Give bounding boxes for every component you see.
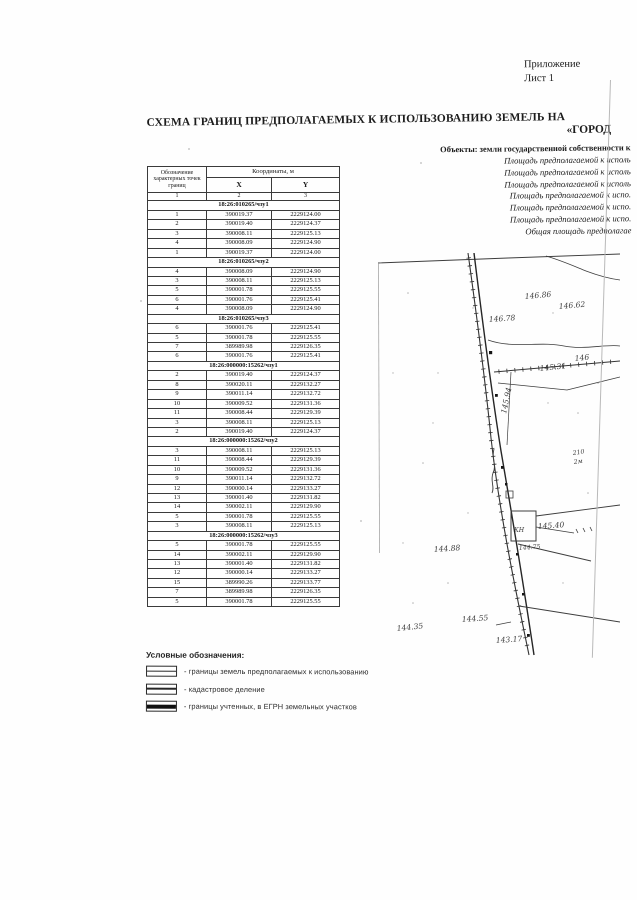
map-labels-group: 146.86146.62146.78146145.31145.942102мКН… (396, 290, 590, 645)
header-x: X (207, 178, 272, 193)
corner-note-line1: Приложение (524, 58, 580, 72)
coordinate-row: 2390019.402229124.37 (148, 220, 340, 229)
map-label: 146.86 (524, 290, 551, 301)
boundary-tick (494, 480, 498, 481)
boundary-tick (508, 559, 512, 560)
bottom-tick-mark (496, 622, 511, 625)
map-label: 145.94 (499, 386, 513, 414)
boundary-tick (479, 353, 483, 354)
legend: Условные обозначения: - границы земель п… (146, 651, 369, 719)
header-y: Y (272, 178, 340, 193)
boundary-tick (499, 511, 503, 512)
objects-lines: Площадь предполагаемой к испольПлощадь п… (295, 154, 632, 240)
corner-note: Приложение Лист 1 (524, 58, 581, 85)
scan-speck (188, 148, 190, 150)
section-title-row: 18:26:000000:15262/чзу3 (148, 531, 340, 541)
boundary-tick (468, 266, 472, 267)
coordinate-row: 3390008.112229125.13 (148, 418, 340, 427)
boundary-tick (497, 496, 501, 497)
map-label: 144.88 (434, 543, 461, 554)
coordinate-row: 12390000.142229133.27 (148, 484, 340, 493)
coordinates-table: Обозначение характерных точек границ Коо… (147, 166, 340, 607)
map-label: 145.40 (538, 520, 565, 531)
header-coordinates-group: Координаты, м (207, 167, 340, 178)
header-colnum-2: 2 (207, 193, 272, 201)
boundary-tick (480, 361, 484, 362)
coordinate-row: 5390001.782229125.55 (148, 286, 340, 295)
boundary-tick (502, 527, 506, 528)
boundary-tick (509, 567, 513, 568)
boundary-tick (484, 393, 488, 394)
map-left-border (379, 263, 380, 553)
legend-items: - границы земель предполагаемых к исполь… (146, 666, 369, 713)
boundary-tick (475, 321, 479, 322)
map-top-border (378, 254, 620, 263)
coordinate-row: 9390011.142229132.72 (148, 475, 340, 484)
coordinate-row: 14390002.112229129.90 (148, 550, 340, 559)
boundary-tick (469, 274, 473, 275)
scan-speck (140, 300, 142, 302)
map-label: 2м (572, 458, 583, 466)
boundary-tick (472, 297, 476, 298)
boundary-tick (525, 645, 529, 646)
header-colnum-1: 1 (148, 193, 207, 201)
boundary-tick (506, 551, 510, 552)
boundary-tick (481, 369, 485, 370)
boundary-tick (503, 535, 507, 536)
wedge-line (498, 377, 620, 390)
coordinate-row: 5390001.782229125.55 (148, 333, 340, 342)
scanned-document-page: Приложение Лист 1 СХЕМА ГРАНИЦ ПРЕДПОЛАГ… (0, 0, 637, 900)
coordinate-row: 13390001.402229131.82 (148, 559, 340, 568)
boundary-tick (473, 305, 477, 306)
section-title-row: 18:26:010265/чзу3 (148, 314, 340, 324)
boundary-tick (511, 574, 515, 575)
coordinate-row: 12390000.142229133.27 (148, 569, 340, 578)
boundary-tick (498, 504, 502, 505)
section-title-row: 18:26:000000:15262/чзу2 (148, 437, 340, 447)
boundary-tick (476, 329, 480, 330)
coordinate-row: 5390001.782229125.55 (148, 541, 340, 550)
legend-item-label: - границы учтенных, в ЕГРН земельных уча… (184, 702, 357, 712)
coordinate-row: 15389990.262229133.77 (148, 578, 340, 587)
map-label: 146.62 (558, 300, 585, 311)
map-svg: 146.86146.62146.78146145.31145.942102мКН… (378, 253, 620, 657)
legend-symbol-mid-line (146, 683, 177, 694)
objects-block: Объекты: земли государственной собственн… (295, 143, 632, 240)
boundary-tick (467, 258, 471, 259)
map-label: 144.55 (462, 613, 489, 624)
boundary-tick (505, 543, 509, 544)
section-title-row: 18:26:010265/чзу2 (148, 258, 340, 268)
map-label: КН (513, 527, 525, 534)
map-label: 144.75 (519, 543, 541, 551)
coordinate-row: 6390001.762229125.41 (148, 352, 340, 361)
scan-speck (420, 162, 422, 164)
coordinate-row: 1390019.372229124.00 (148, 211, 340, 220)
document-title: СХЕМА ГРАНИЦ ПРЕДПОЛАГАЕМЫХ К ИСПОЛЬЗОВА… (95, 110, 617, 142)
coords-table-body: 18:26:010265/чзу11390019.372229124.00239… (148, 201, 340, 607)
boundary-tick (483, 385, 487, 386)
coordinate-row: 2390019.402229124.37 (148, 427, 340, 436)
map-sketch: 146.86146.62146.78146145.31145.942102мКН… (378, 253, 620, 657)
branch-line-4 (519, 606, 620, 622)
boundary-tick (477, 337, 481, 338)
coordinate-row: 2390019.402229124.37 (148, 371, 340, 380)
boundary-tick (478, 345, 482, 346)
objects-line: Общая площадь предполагае (295, 225, 631, 240)
coordinate-row: 4390008.092229124.90 (148, 239, 340, 248)
boundary-tick (512, 582, 516, 583)
map-label: 143.17 (496, 634, 523, 645)
coordinate-row: 11390008.442229129.39 (148, 409, 340, 418)
legend-heading: Условные обозначения: (146, 651, 369, 661)
legend-item: - границы земель предполагаемых к исполь… (146, 666, 369, 678)
coordinate-row: 3390008.112229125.13 (148, 277, 340, 286)
branch-ticks (576, 527, 592, 533)
boundary-tick (501, 519, 505, 520)
boundary-tick (474, 313, 478, 314)
map-label: 144.35 (396, 621, 424, 633)
coordinate-row: 8390020.112229132.27 (148, 380, 340, 389)
legend-item: - кадастровое деление (146, 683, 369, 695)
coordinate-row: 3390008.112229125.13 (148, 522, 340, 531)
coordinate-row: 7389989.982229126.35 (148, 343, 340, 352)
boundary-tick (492, 464, 496, 465)
coordinate-row: 5390001.782229125.55 (148, 512, 340, 521)
boundary-tick (491, 456, 495, 457)
header-point-designation: Обозначение характерных точек границ (148, 167, 207, 193)
boundary-tick (490, 448, 494, 449)
coordinate-row: 6390001.762229125.41 (148, 295, 340, 304)
header-colnum-3: 3 (272, 193, 340, 201)
coordinate-row: 10390009.522229131.36 (148, 465, 340, 474)
branch-line-1 (536, 505, 620, 516)
legend-symbol-thick-line (146, 701, 177, 712)
coordinate-row: 4390008.092229124.90 (148, 267, 340, 276)
boundary-tick (489, 440, 493, 441)
coordinate-row: 5390001.782229125.55 (148, 597, 340, 606)
boundary-tick (515, 598, 519, 599)
legend-symbol-thin-line (146, 666, 177, 677)
boundary-tick (482, 377, 486, 378)
legend-item-label: - кадастровое деление (184, 684, 265, 693)
map-label: 210 (571, 448, 585, 457)
map-label: 146.78 (489, 313, 516, 324)
map-road-curve (546, 256, 620, 280)
section-title-row: 18:26:000000:15262/чзу1 (148, 361, 340, 371)
coordinate-row: 3390008.112229125.13 (148, 229, 340, 238)
boundary-tick (518, 614, 522, 615)
legend-item: - границы учтенных, в ЕГРН земельных уча… (146, 701, 369, 713)
boundary-tick (523, 637, 527, 638)
boundary-tick (495, 488, 499, 489)
map-label: 145.31 (539, 361, 566, 373)
coordinate-row: 13390001.402229131.82 (148, 493, 340, 502)
handwriting-squiggle (492, 449, 494, 493)
scan-noise-dots (392, 292, 599, 604)
boundary-tick (522, 629, 526, 630)
scan-speck (360, 520, 362, 522)
corner-note-line2: Лист 1 (524, 71, 580, 85)
coordinates-table-header: Обозначение характерных точек границ Коо… (148, 167, 340, 201)
coordinate-row: 11390008.442229129.39 (148, 456, 340, 465)
coordinate-row: 4390008.092229124.90 (148, 305, 340, 314)
legend-item-label: - границы земель предполагаемых к исполь… (184, 667, 369, 677)
coordinate-row: 1390019.372229124.00 (148, 248, 340, 257)
coordinate-row: 10390009.522229131.36 (148, 399, 340, 408)
coordinate-row: 6390001.762229125.41 (148, 324, 340, 333)
coordinate-row: 7389989.982229126.35 (148, 588, 340, 597)
boundary-tick (520, 621, 524, 622)
contour-line (488, 340, 620, 347)
coordinate-row: 9390011.142229132.72 (148, 390, 340, 399)
map-label: 146 (574, 353, 590, 363)
boundary-tick (471, 289, 475, 290)
section-title-row: 18:26:010265/чзу1 (148, 201, 340, 211)
boundary-tick (470, 281, 474, 282)
coordinate-row: 3390008.112229125.13 (148, 446, 340, 455)
boundary-tick (514, 590, 518, 591)
coordinate-row: 14390002.112229129.90 (148, 503, 340, 512)
